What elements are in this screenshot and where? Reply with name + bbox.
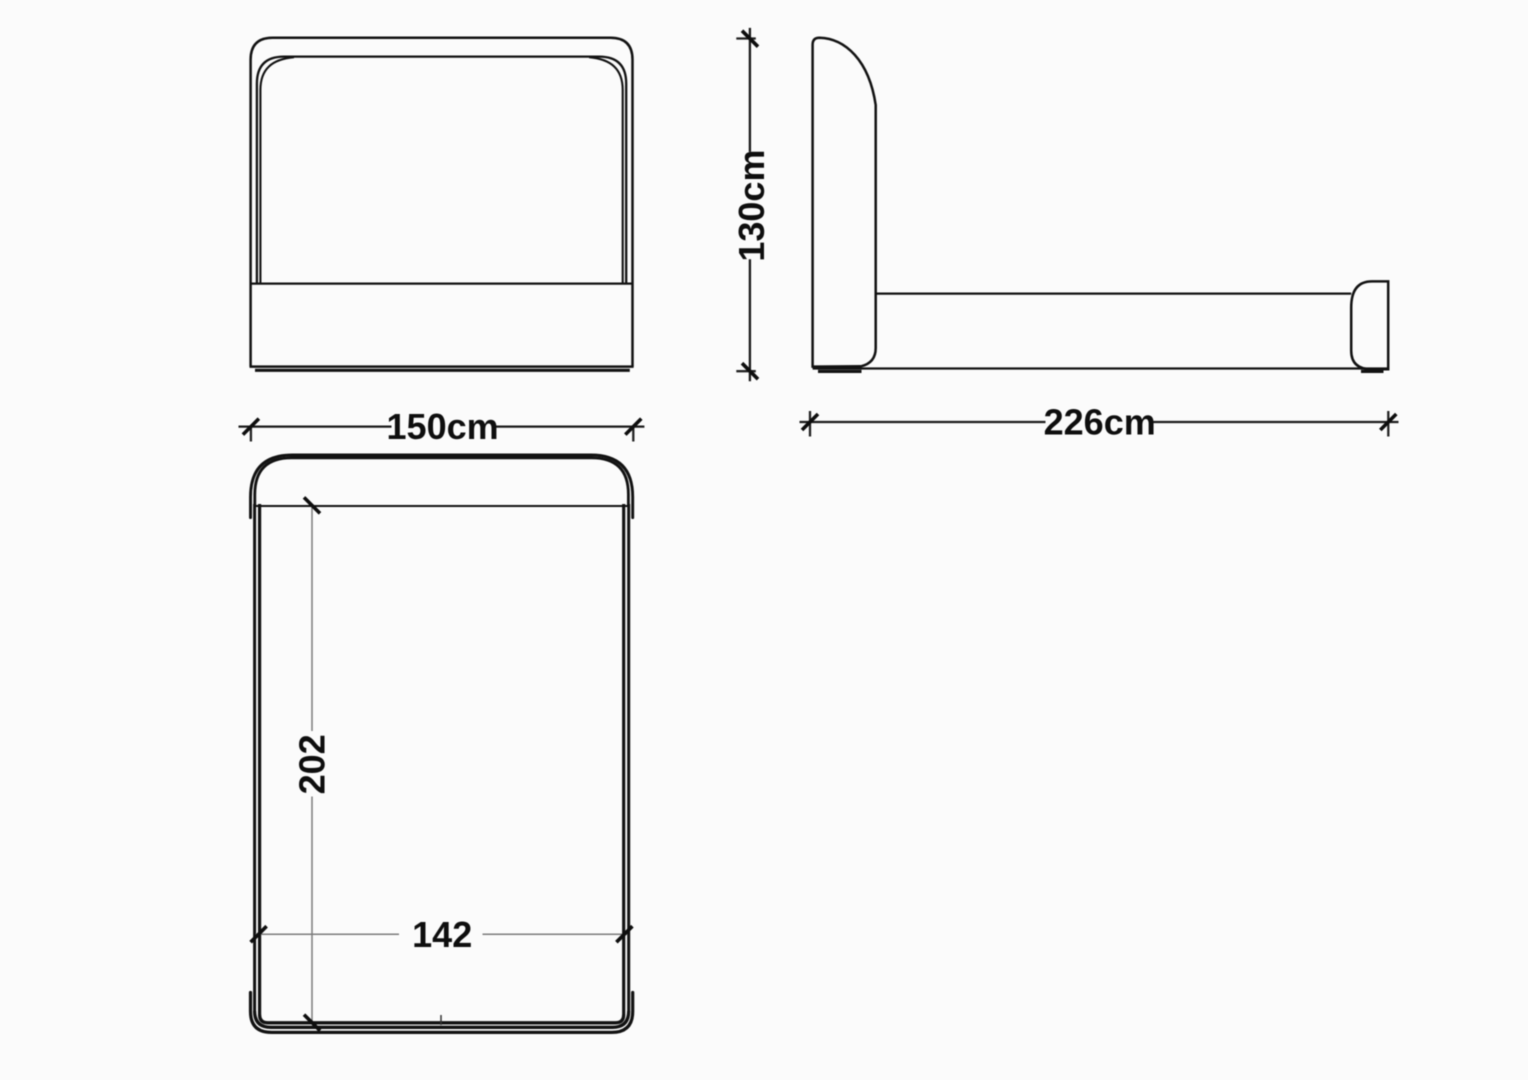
svg-text:130cm: 130cm	[731, 150, 772, 262]
svg-text:150cm: 150cm	[387, 406, 499, 447]
svg-text:142: 142	[412, 914, 472, 955]
svg-text:226cm: 226cm	[1044, 402, 1156, 443]
svg-text:202: 202	[292, 734, 333, 794]
